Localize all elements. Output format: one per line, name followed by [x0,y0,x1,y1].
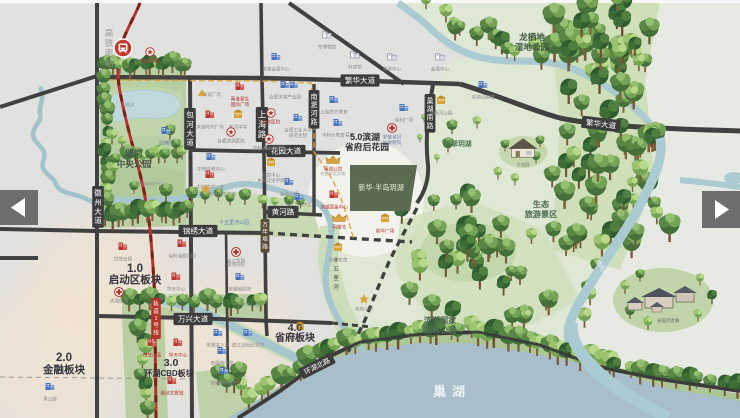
svg-text:科技馆: 科技馆 [348,63,362,70]
svg-text:轨: 轨 [153,300,159,308]
svg-text:合肥滨湖医院: 合肥滨湖医院 [217,137,245,144]
svg-text:黄河路: 黄河路 [272,207,295,217]
svg-text:黑山居: 黑山居 [43,395,57,402]
svg-text:新华·半岛玥湖: 新华·半岛玥湖 [358,183,404,192]
svg-text:1: 1 [154,316,157,322]
svg-text:路: 路 [311,117,318,126]
svg-text:中央公园: 中央公园 [117,158,152,169]
svg-text:线: 线 [153,328,159,336]
svg-text:龙栖地: 龙栖地 [518,31,545,42]
svg-text:省府板块: 省府板块 [274,331,316,344]
svg-text:园博园: 园博园 [159,139,173,146]
svg-text:巢湖: 巢湖 [432,384,471,399]
svg-text:铁: 铁 [105,37,114,48]
svg-text:上: 上 [258,109,266,119]
svg-text:启动区板块: 启动区板块 [109,273,162,286]
svg-text:滨湖时代广场: 滨湖时代广场 [196,123,224,130]
svg-text:上海世外教育: 上海世外教育 [320,108,348,115]
svg-text:中海滨湖公馆: 中海滨湖公馆 [196,183,224,190]
svg-text:长临河古镇: 长临河古镇 [657,317,680,324]
svg-text:安徽省政府: 安徽省政府 [229,285,252,292]
svg-text:揽翠玥湖: 揽翠玥湖 [444,139,471,148]
svg-text:州: 州 [94,198,102,207]
svg-text:万: 万 [262,221,268,228]
svg-text:湿地公园: 湿地公园 [515,41,550,52]
svg-text:路: 路 [427,121,434,130]
svg-text:徽: 徽 [94,188,102,198]
svg-text:滨湖国家: 滨湖国家 [424,315,458,325]
svg-text:奥体中心: 奥体中心 [383,65,402,72]
svg-text:塘西河公园: 塘西河公园 [430,109,453,116]
svg-text:安徽省科技馆: 安徽省科技馆 [210,379,238,386]
svg-text:方兴大公园: 方兴大公园 [237,301,260,308]
svg-text:安徽美术馆: 安徽美术馆 [211,359,234,366]
svg-text:新华广场: 新华广场 [376,227,395,234]
svg-text:繁华大道: 繁华大道 [345,75,376,85]
svg-text:旅游景区: 旅游景区 [524,209,558,219]
svg-text:生态: 生态 [533,199,550,209]
svg-text:道: 道 [94,215,102,225]
svg-text:世茂深蓝: 世茂深蓝 [143,351,162,358]
svg-text:大: 大 [94,206,102,216]
svg-text:万兴大道: 万兴大道 [178,314,209,324]
svg-text:省府小学: 省府小学 [355,305,374,312]
svg-text:中央财税中心: 中央财税中心 [197,165,225,172]
svg-text:南: 南 [105,47,114,58]
svg-text:淝: 淝 [311,100,318,109]
svg-text:道: 道 [186,137,194,147]
svg-text:会展中心: 会展中心 [431,65,450,72]
svg-text:省府医院: 省府医院 [262,118,281,125]
svg-text:保利广场: 保利广场 [395,116,414,123]
svg-text:新地城市广场: 新地城市广场 [208,191,236,198]
svg-text:生态体验中心: 生态体验中心 [137,180,163,187]
svg-text:大: 大 [186,128,194,138]
svg-text:大雁湖: 大雁湖 [122,101,135,108]
svg-text:3.0: 3.0 [164,357,179,369]
svg-text:高: 高 [105,27,114,38]
svg-text:河: 河 [333,283,339,291]
svg-text:滨湖分院: 滨湖分院 [227,261,245,268]
svg-text:省工艺美术馆: 省工艺美术馆 [286,201,313,208]
svg-text:环湖CBD板块: 环湖CBD板块 [144,368,194,378]
svg-text:2.0: 2.0 [56,352,72,364]
svg-text:东方乐园: 东方乐园 [141,57,160,64]
svg-text:天珑广场: 天珑广场 [203,91,221,98]
svg-text:站: 站 [105,57,114,68]
svg-text:协和双语学校: 协和双语学校 [257,177,285,184]
svg-text:埠: 埠 [262,235,268,243]
svg-text:年: 年 [262,228,268,236]
svg-text:融创文旅城: 融创文旅城 [161,389,184,396]
svg-text:河: 河 [311,110,318,118]
svg-text:十: 十 [333,256,339,264]
svg-text:森林公园: 森林公园 [424,325,457,335]
svg-text:南: 南 [311,92,318,101]
svg-text:滨湖国金中心: 滨湖国金中心 [320,203,348,210]
svg-text:滨湖卓越城: 滨湖卓越城 [472,93,495,100]
svg-text:玥湖湾: 玥湖湾 [332,223,346,230]
svg-text:5.0滨湖: 5.0滨湖 [350,131,380,142]
svg-text:生态园: 生态园 [517,161,530,168]
svg-text:市博物馆: 市博物馆 [318,43,337,50]
svg-text:里: 里 [333,275,339,282]
svg-text:世茂云锦: 世茂云锦 [114,255,133,262]
svg-text:滨湖会展中心: 滨湖会展中心 [262,65,290,72]
svg-text:路: 路 [262,243,268,251]
svg-text:省府后花园: 省府后花园 [344,141,389,152]
svg-text:锦绣大道: 锦绣大道 [183,226,214,236]
svg-text:包: 包 [186,110,194,120]
svg-text:河: 河 [186,120,194,129]
svg-text:金融板块: 金融板块 [42,363,85,376]
svg-text:号: 号 [153,322,159,329]
svg-text:华天中心: 华天中心 [167,285,186,292]
svg-text:国际广场: 国际广场 [231,101,250,108]
svg-text:中科大金融学院: 中科大金融学院 [253,144,286,151]
svg-text:研究生院: 研究生院 [289,132,308,139]
svg-text:巢: 巢 [427,96,434,105]
svg-text:五: 五 [333,266,339,273]
svg-text:十五里河公园: 十五里河公园 [219,219,249,226]
svg-text:骆岗: 骆岗 [125,147,142,158]
svg-text:合肥滨湖产业园: 合肥滨湖产业园 [269,93,302,100]
svg-text:道: 道 [153,307,159,315]
svg-text:滨湖医院: 滨湖医院 [110,297,129,304]
svg-text:在售学区好房: 在售学区好房 [320,170,345,177]
svg-text:保利海德花园: 保利海德花园 [168,252,196,259]
svg-text:渡江战役纪念馆: 渡江战役纪念馆 [232,341,265,348]
